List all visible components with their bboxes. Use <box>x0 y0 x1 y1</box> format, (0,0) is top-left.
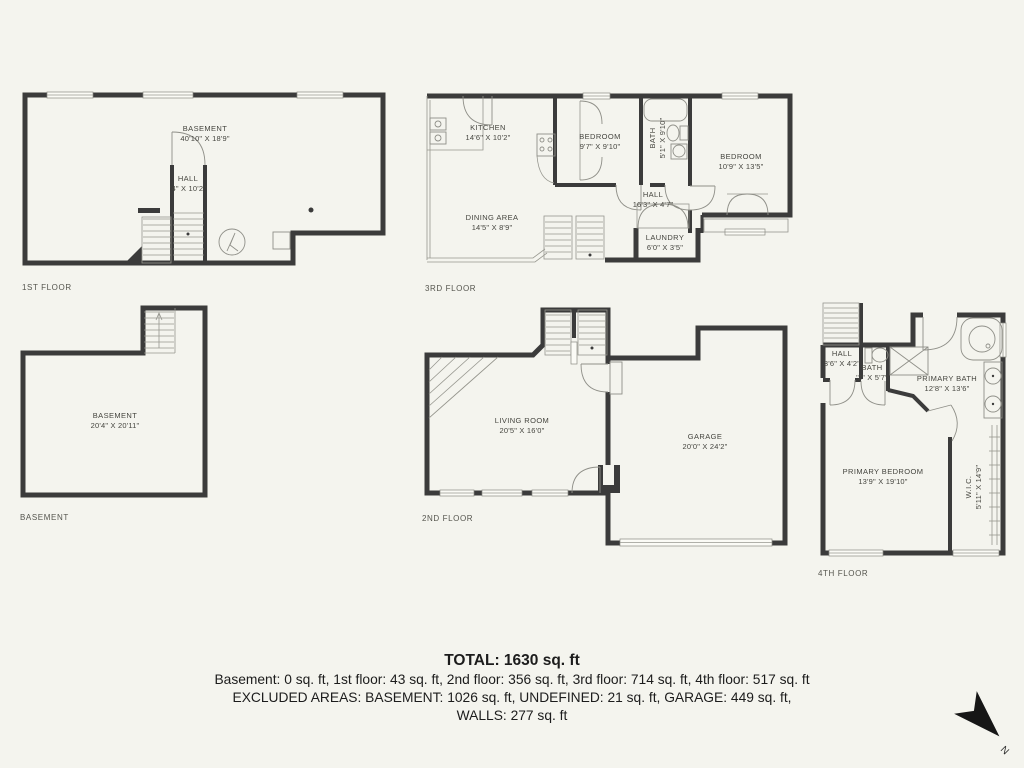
third-floor-walls <box>427 96 790 262</box>
fixture-symbol <box>219 229 245 255</box>
room-name: BATH <box>648 118 658 159</box>
fourth-floor-plan <box>815 295 1010 570</box>
fourth-floor-walls <box>823 303 1003 553</box>
room-dims: '2" X 5'7" <box>856 373 888 383</box>
caption-second-floor: 2ND FLOOR <box>422 514 473 523</box>
room-name: BASEMENT <box>180 124 229 134</box>
excluded-areas-text: EXCLUDED AREAS: BASEMENT: 1026 sq. ft, U… <box>0 689 1024 707</box>
third-floor-stairs <box>544 216 604 259</box>
room-label-basement-1f: BASEMENT 40'10" X 18'9" <box>180 124 229 144</box>
room-dims: 3'6" X 4'2" <box>824 359 860 369</box>
room-name: HALL <box>170 174 206 184</box>
room-label-hall-4f: HALL 3'6" X 4'2" <box>824 349 860 369</box>
room-label-bath-3f: BATH 5'1" X 9'10" <box>648 118 668 159</box>
room-label-bedroom-2: BEDROOM 10'9" X 13'5" <box>719 152 764 172</box>
shower-stall <box>890 347 928 375</box>
second-floor-walls <box>427 308 785 543</box>
room-dims: 14'6" X 10'2" <box>466 133 511 143</box>
room-dims: '4" X 10'2" <box>170 184 206 194</box>
room-dims: 10'9" X 13'5" <box>719 162 764 172</box>
floor-object <box>273 232 290 249</box>
room-dims: 16'3" X 4'7" <box>633 200 674 210</box>
second-floor-plan <box>420 300 795 550</box>
room-label-basement: BASEMENT 20'4" X 20'11" <box>91 411 140 431</box>
room-dims: 40'10" X 18'9" <box>180 134 229 144</box>
room-label-kitchen: KITCHEN 14'6" X 10'2" <box>466 123 511 143</box>
bath-fixtures-4f <box>865 348 888 363</box>
room-dims: 5'11" X 14'9" <box>974 465 984 509</box>
basement-stairs <box>144 308 175 353</box>
caption-fourth-floor: 4TH FLOOR <box>818 569 868 578</box>
north-arrow-icon: N <box>945 688 1017 760</box>
fourth-floor-stairs <box>823 303 859 345</box>
caption-first-floor: 1ST FLOOR <box>22 283 72 292</box>
room-name: BATH <box>856 363 888 373</box>
north-label: N <box>998 744 1011 757</box>
floor-areas-text: Basement: 0 sq. ft, 1st floor: 43 sq. ft… <box>0 671 1024 689</box>
room-label-garage: GARAGE 20'0" X 24'2" <box>683 432 728 452</box>
wic-closet-rods <box>989 425 1000 545</box>
room-name: PRIMARY BATH <box>917 374 977 384</box>
room-name: BASEMENT <box>91 411 140 421</box>
room-dims: 20'5" X 16'0" <box>495 426 549 436</box>
room-label-primary-bath: PRIMARY BATH 12'8" X 13'6" <box>917 374 977 394</box>
room-name: LAUNDRY <box>646 233 685 243</box>
room-name: PRIMARY BEDROOM <box>843 467 924 477</box>
caption-basement: BASEMENT <box>20 513 69 522</box>
room-label-living-room: LIVING ROOM 20'5" X 16'0" <box>495 416 549 436</box>
caption-third-floor: 3RD FLOOR <box>425 284 476 293</box>
under-stair-hatch <box>429 357 498 418</box>
room-dims: 20'0" X 24'2" <box>683 442 728 452</box>
north-arrow-shape <box>954 691 1011 748</box>
room-name: BEDROOM <box>579 132 621 142</box>
room-name: KITCHEN <box>466 123 511 133</box>
floor-plan-sheet: BASEMENT 40'10" X 18'9" HALL '4" X 10'2"… <box>0 0 1024 768</box>
area-summary: TOTAL: 1630 sq. ft Basement: 0 sq. ft, 1… <box>0 651 1024 725</box>
room-label-bath-4f: BATH '2" X 5'7" <box>856 363 888 383</box>
total-area-text: TOTAL: 1630 sq. ft <box>0 651 1024 671</box>
room-name: BEDROOM <box>719 152 764 162</box>
third-floor-plan <box>425 88 795 268</box>
room-label-wic: W.I.C. 5'11" X 14'9" <box>964 465 984 509</box>
room-name: HALL <box>633 190 674 200</box>
room-label-hall-1f: HALL '4" X 10'2" <box>170 174 206 194</box>
walls-area-text: WALLS: 277 sq. ft <box>0 707 1024 725</box>
room-name: GARAGE <box>683 432 728 442</box>
basement-walls <box>23 308 205 495</box>
room-name: LIVING ROOM <box>495 416 549 426</box>
room-label-primary-bedroom: PRIMARY BEDROOM 13'9" X 19'10" <box>843 467 924 487</box>
room-label-hall-3f: HALL 16'3" X 4'7" <box>633 190 674 210</box>
room-dims: 5'1" X 9'10" <box>658 118 668 159</box>
room-label-bedroom-1: BEDROOM 9'7" X 9'10" <box>579 132 621 152</box>
room-dims: 6'0" X 3'5" <box>646 243 685 253</box>
room-label-laundry: LAUNDRY 6'0" X 3'5" <box>646 233 685 253</box>
room-dims: 12'8" X 13'6" <box>917 384 977 394</box>
room-label-dining-area: DINING AREA 14'5" X 8'9" <box>466 213 519 233</box>
room-dims: 9'7" X 9'10" <box>579 142 621 152</box>
room-dims: 20'4" X 20'11" <box>91 421 140 431</box>
column-dot <box>309 208 314 213</box>
room-dims: 13'9" X 19'10" <box>843 477 924 487</box>
room-dims: 14'5" X 8'9" <box>466 223 519 233</box>
room-name: HALL <box>824 349 860 359</box>
room-name: DINING AREA <box>466 213 519 223</box>
basement-plan <box>18 298 213 503</box>
primary-bath-fixtures <box>961 318 1002 418</box>
room-name: W.I.C. <box>964 465 974 509</box>
